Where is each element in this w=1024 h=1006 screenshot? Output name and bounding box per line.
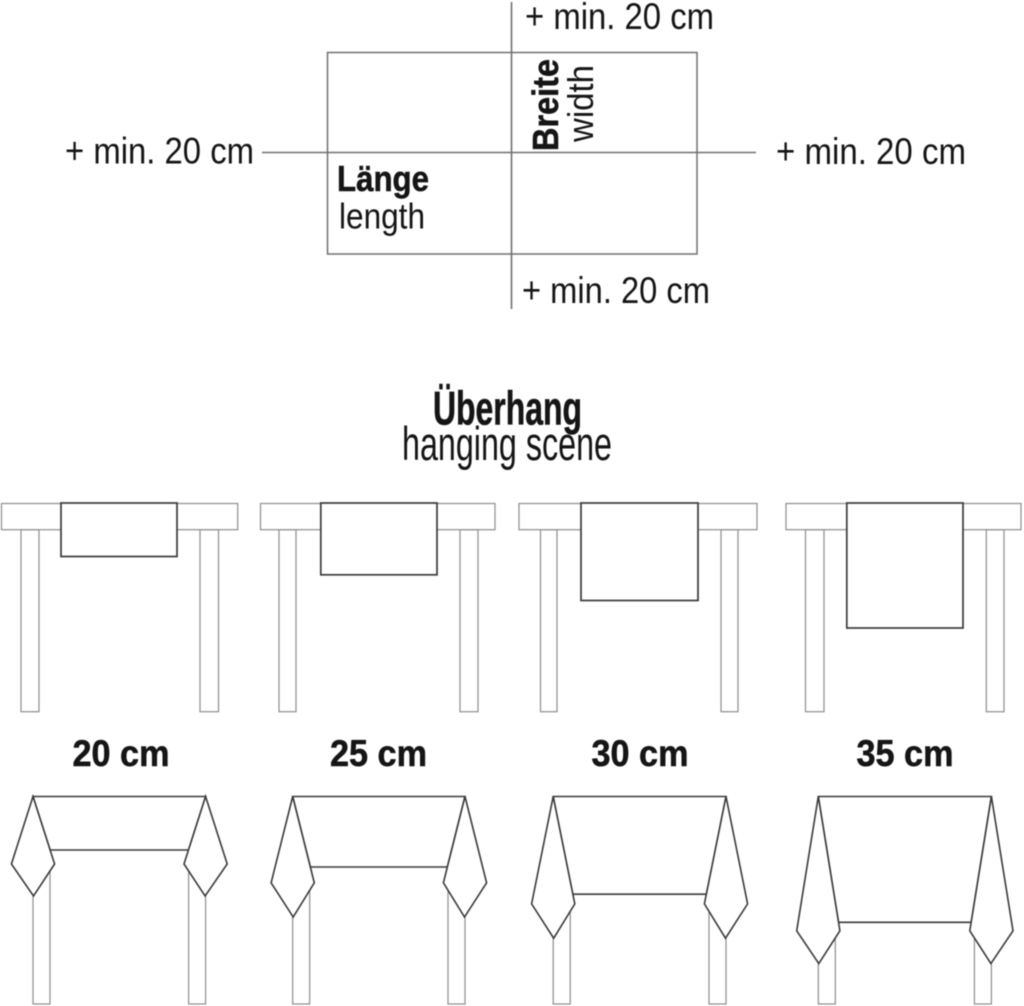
svg-text:length: length xyxy=(339,196,425,237)
svg-text:hanging scene: hanging scene xyxy=(402,417,612,470)
svg-text:35 cm: 35 cm xyxy=(857,733,954,774)
svg-text:width: width xyxy=(560,65,601,143)
svg-text:+ min. 20 cm: + min. 20 cm xyxy=(525,0,714,37)
svg-text:+ min. 20 cm: + min. 20 cm xyxy=(65,131,254,172)
svg-text:20 cm: 20 cm xyxy=(73,733,170,774)
svg-text:Länge: Länge xyxy=(337,158,429,199)
svg-text:30 cm: 30 cm xyxy=(592,733,689,774)
svg-text:25 cm: 25 cm xyxy=(330,733,427,774)
svg-text:+ min. 20 cm: + min. 20 cm xyxy=(522,270,710,311)
svg-text:+ min. 20 cm: + min. 20 cm xyxy=(776,131,966,172)
